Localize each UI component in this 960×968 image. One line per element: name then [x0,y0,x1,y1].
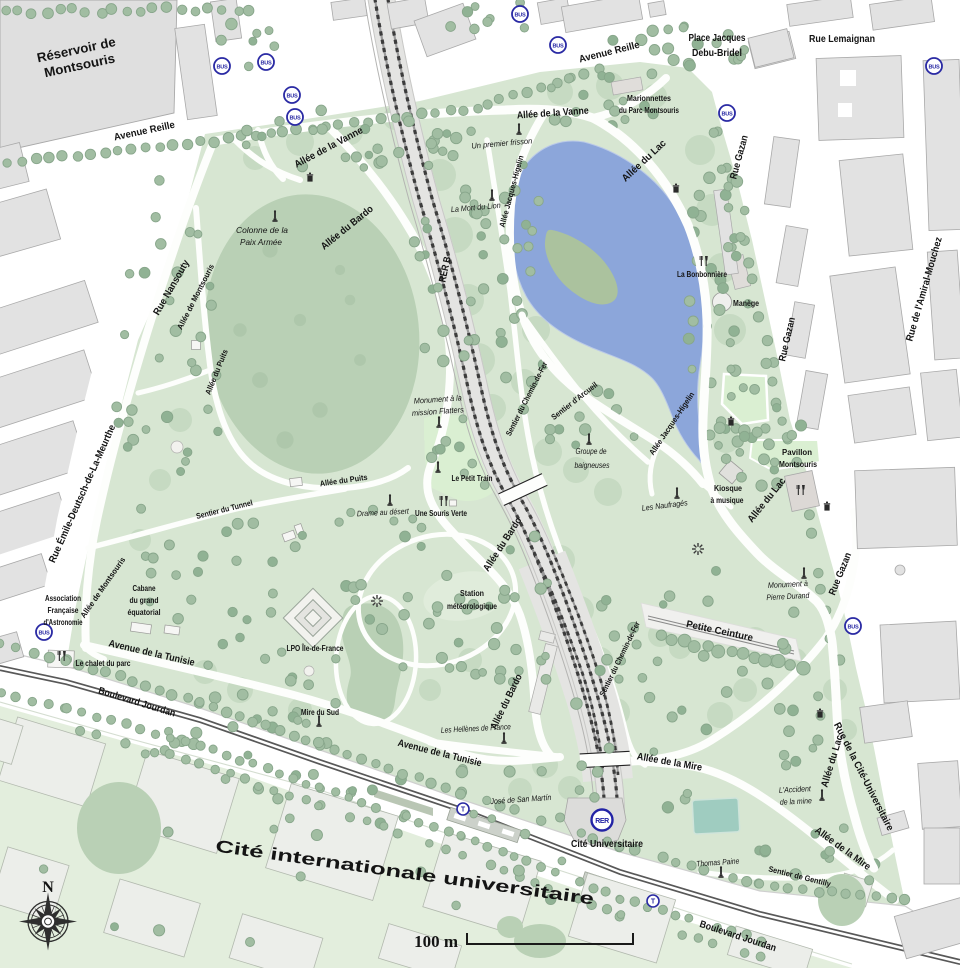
svg-text:T: T [461,807,466,814]
svg-text:BUS: BUS [553,43,564,49]
svg-text:BUS: BUS [287,93,298,99]
svg-text:Manège: Manège [733,299,759,308]
svg-text:Place Jacques: Place Jacques [689,33,746,44]
svg-text:du grand: du grand [130,596,159,605]
svg-text:du Parc Montsouris: du Parc Montsouris [619,106,679,115]
svg-text:BUS: BUS [217,64,228,70]
svg-text:à musique: à musique [711,496,744,505]
svg-text:Mire du Sud: Mire du Sud [301,708,339,717]
svg-text:BUS: BUS [515,12,526,18]
svg-text:baigneuses: baigneuses [575,461,610,470]
svg-text:Debu-Bridel: Debu-Bridel [692,48,742,59]
svg-text:LPO Île-de-France: LPO Île-de-France [287,644,344,653]
svg-text:Montsouris: Montsouris [779,460,817,469]
svg-text:Colonne de la: Colonne de la [236,226,289,235]
svg-text:BUS: BUS [39,630,50,636]
svg-text:La Bonbonnière: La Bonbonnière [677,270,727,279]
svg-text:Groupe de: Groupe de [576,447,607,456]
svg-text:Paix Armée: Paix Armée [240,238,283,247]
svg-text:Le Petit Train: Le Petit Train [452,474,493,483]
svg-text:BUS: BUS [929,64,940,70]
svg-text:d'Astronomie: d'Astronomie [44,618,83,627]
svg-text:Le chalet du parc: Le chalet du parc [76,659,131,668]
svg-text:N: N [42,879,54,896]
svg-text:RER: RER [595,818,609,825]
svg-text:Française: Française [48,606,79,615]
svg-text:Cité Universitaire: Cité Universitaire [571,839,643,850]
svg-text:BUS: BUS [290,115,301,121]
svg-text:Pavillon: Pavillon [782,448,812,457]
svg-text:Marionnettes: Marionnettes [627,94,671,103]
svg-text:BUS: BUS [261,60,272,66]
svg-text:Une Souris Verte: Une Souris Verte [415,509,467,518]
svg-text:BUS: BUS [848,624,859,630]
svg-text:T: T [651,899,656,906]
svg-text:Rue Lemaignan: Rue Lemaignan [809,34,875,45]
svg-text:L'Accident: L'Accident [779,784,812,795]
svg-text:Station: Station [460,589,484,598]
svg-text:de la mine: de la mine [780,796,813,807]
svg-text:météorologique: météorologique [447,602,497,611]
svg-text:Association: Association [45,594,81,603]
svg-text:BUS: BUS [722,111,733,117]
svg-text:équatorial: équatorial [128,608,161,617]
svg-text:Cabane: Cabane [133,584,156,593]
svg-text:Kiosque: Kiosque [714,484,742,493]
svg-text:100 m: 100 m [414,932,458,951]
